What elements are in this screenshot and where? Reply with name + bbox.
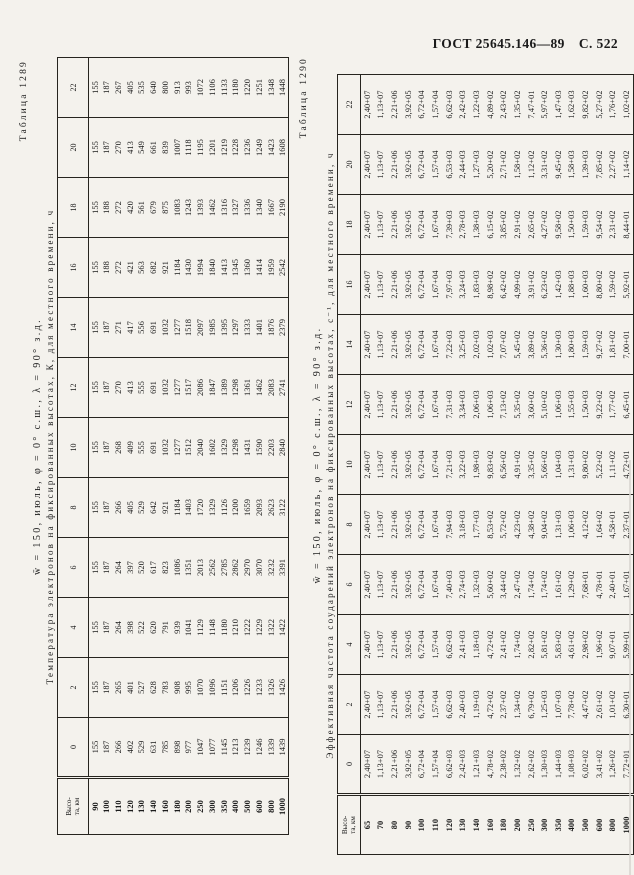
value-cell: 6,62+03 xyxy=(442,615,456,675)
value-cell: 2623 xyxy=(265,478,277,538)
altitude-cell: 400 xyxy=(230,778,242,835)
value-cell: 1,34+02 xyxy=(511,675,525,735)
value-cell: 6,53+03 xyxy=(442,135,456,195)
value-cell: 1448 xyxy=(277,58,289,118)
value-cell: 1077 xyxy=(206,718,218,778)
value-cell: 8,80+02 xyxy=(592,255,606,315)
table-row: 1006,72+046,72+046,72+046,72+046,72+046,… xyxy=(415,75,429,855)
value-cell: 1462 xyxy=(206,178,218,238)
value-cell: 800 xyxy=(159,58,171,118)
value-cell: 2,82+02 xyxy=(524,615,538,675)
value-cell: 3,44+02 xyxy=(497,555,511,615)
altitude-cell: 300 xyxy=(206,778,218,835)
altitude-column-header: Высо-та, км xyxy=(58,778,89,835)
hour-header: 22 xyxy=(338,75,361,135)
value-cell: 8,44+01 xyxy=(620,195,634,255)
value-cell: 1326 xyxy=(265,658,277,718)
value-cell: 1329 xyxy=(206,478,218,538)
value-cell: 6,72+04 xyxy=(415,375,429,435)
table-head: Высо-та, км0246810121416182022 xyxy=(58,58,89,835)
value-cell: 9,07+01 xyxy=(606,615,620,675)
value-cell: 2203 xyxy=(265,418,277,478)
value-cell: 620 xyxy=(147,598,159,658)
table-row: 3001077109611482562132916021847198518401… xyxy=(206,58,218,835)
value-cell: 640 xyxy=(147,58,159,118)
value-cell: 1,39+03 xyxy=(579,135,593,195)
value-cell: 1233 xyxy=(253,658,265,718)
value-cell: 1200 xyxy=(230,478,242,538)
value-cell: 520 xyxy=(136,538,148,598)
value-cell: 2,91+02 xyxy=(511,195,525,255)
value-cell: 1,32+02 xyxy=(511,735,525,795)
value-cell: 1,30+03 xyxy=(551,315,565,375)
value-cell: 1602 xyxy=(206,418,218,478)
table-head: Высо-та, км0246810121416182022 xyxy=(338,75,361,855)
value-cell: 1590 xyxy=(253,418,265,478)
value-cell: 691 xyxy=(147,298,159,358)
value-cell: 2840 xyxy=(277,418,289,478)
value-cell: 556 xyxy=(136,298,148,358)
value-cell: 823 xyxy=(159,538,171,598)
hour-header: 4 xyxy=(338,615,361,675)
value-cell: 1,77+03 xyxy=(470,495,484,555)
value-cell: 1,77+02 xyxy=(606,375,620,435)
value-cell: 1,13+07 xyxy=(374,615,388,675)
value-cell: 631 xyxy=(147,718,159,778)
altitude-cell: 130 xyxy=(456,795,470,855)
value-cell: 2,43+02 xyxy=(497,75,511,135)
value-cell: 875 xyxy=(159,178,171,238)
value-cell: 1226 xyxy=(241,658,253,718)
value-cell: 2,40+07 xyxy=(361,495,375,555)
value-cell: 1,18+03 xyxy=(470,615,484,675)
value-cell: 2562 xyxy=(206,538,218,598)
value-cell: 1277 xyxy=(171,298,183,358)
value-cell: 2,21+06 xyxy=(388,555,402,615)
value-cell: 6,72+04 xyxy=(415,495,429,555)
value-cell: 1243 xyxy=(183,178,195,238)
value-cell: 839 xyxy=(159,118,171,178)
table-row: 110266265264264266268270271272272270267 xyxy=(112,58,124,835)
value-cell: 6,02+02 xyxy=(579,735,593,795)
value-cell: 1994 xyxy=(194,238,206,298)
value-cell: 1,13+07 xyxy=(374,555,388,615)
value-cell: 405 xyxy=(124,58,136,118)
value-cell: 1,13+07 xyxy=(374,195,388,255)
value-cell: 2,06+03 xyxy=(470,375,484,435)
value-cell: 1126 xyxy=(218,478,230,538)
value-cell: 7,72+01 xyxy=(620,735,634,795)
value-cell: 5,81+02 xyxy=(538,615,552,675)
value-cell: 1007 xyxy=(171,118,183,178)
value-cell: 1239 xyxy=(241,718,253,778)
value-cell: 8,98+02 xyxy=(483,255,497,315)
value-cell: 561 xyxy=(136,178,148,238)
value-cell: 417 xyxy=(124,298,136,358)
value-cell: 2,62+02 xyxy=(524,735,538,795)
value-cell: 188 xyxy=(100,238,112,298)
value-cell: 1,57+04 xyxy=(429,675,443,735)
value-cell: 1180 xyxy=(218,598,230,658)
table-row: 2501047107011292013172020402086209719941… xyxy=(194,58,206,835)
value-cell: 1,57+04 xyxy=(429,75,443,135)
value-cell: 1,59+03 xyxy=(579,195,593,255)
value-cell: 1210 xyxy=(230,598,242,658)
value-cell: 1,13+07 xyxy=(374,255,388,315)
value-cell: 3,22+03 xyxy=(456,435,470,495)
value-cell: 3,35+02 xyxy=(524,435,538,495)
value-cell: 1348 xyxy=(265,58,277,118)
value-cell: 4,38+02 xyxy=(524,495,538,555)
value-cell: 2,38+02 xyxy=(497,735,511,795)
value-cell: 2,40+07 xyxy=(361,255,375,315)
value-cell: 402 xyxy=(124,718,136,778)
altitude-cell: 130 xyxy=(136,778,148,835)
value-cell: 5,92+01 xyxy=(620,255,634,315)
value-cell: 1,13+07 xyxy=(374,315,388,375)
value-cell: 1195 xyxy=(194,118,206,178)
value-cell: 1,26+02 xyxy=(606,735,620,795)
altitude-cell: 160 xyxy=(159,778,171,835)
value-cell: 9,27+02 xyxy=(592,315,606,375)
value-cell: 155 xyxy=(89,598,101,658)
value-cell: 1298 xyxy=(230,418,242,478)
altitude-cell: 800 xyxy=(606,795,620,855)
value-cell: 266 xyxy=(112,478,124,538)
value-cell: 1184 xyxy=(171,478,183,538)
value-cell: 1,59+02 xyxy=(606,255,620,315)
table-row: 1808989089391086118412771277127711841083… xyxy=(171,58,183,835)
value-cell: 6,72+04 xyxy=(415,255,429,315)
value-cell: 2,40+07 xyxy=(361,555,375,615)
hour-header: 22 xyxy=(58,58,89,118)
value-cell: 1,44+03 xyxy=(551,735,565,795)
value-cell: 4,23+02 xyxy=(511,495,525,555)
value-cell: 3,92+05 xyxy=(401,735,415,795)
value-cell: 1439 xyxy=(277,718,289,778)
hour-header: 10 xyxy=(338,435,361,495)
altitude-cell: 110 xyxy=(112,778,124,835)
value-cell: 3122 xyxy=(277,478,289,538)
value-cell: 7,85+02 xyxy=(592,135,606,195)
value-cell: 272 xyxy=(112,178,124,238)
value-cell: 1032 xyxy=(159,418,171,478)
value-cell: 2,40+07 xyxy=(361,435,375,495)
value-cell: 1,96+02 xyxy=(592,615,606,675)
value-cell: 6,72+04 xyxy=(415,675,429,735)
value-cell: 1,67+04 xyxy=(429,315,443,375)
value-cell: 2,31+02 xyxy=(606,195,620,255)
value-cell: 2,61+02 xyxy=(592,675,606,735)
value-cell: 522 xyxy=(136,598,148,658)
value-cell: 1,25+03 xyxy=(538,675,552,735)
value-cell: 5,35+02 xyxy=(511,375,525,435)
value-cell: 7,22+03 xyxy=(442,315,456,375)
value-cell: 1,02+03 xyxy=(483,315,497,375)
value-cell: 2040 xyxy=(194,418,206,478)
value-cell: 1,76+02 xyxy=(606,75,620,135)
value-cell: 5,60+02 xyxy=(483,555,497,615)
value-cell: 3,92+05 xyxy=(401,675,415,735)
value-cell: 1,13+07 xyxy=(374,75,388,135)
value-cell: 7,97+03 xyxy=(442,255,456,315)
value-cell: 1219 xyxy=(218,118,230,178)
value-cell: 3,92+05 xyxy=(401,75,415,135)
value-cell: 2,21+06 xyxy=(388,375,402,435)
altitude-cell: 100 xyxy=(100,778,112,835)
value-cell: 5,36+02 xyxy=(538,315,552,375)
value-cell: 265 xyxy=(112,658,124,718)
value-cell: 4,99+02 xyxy=(511,255,525,315)
value-cell: 1277 xyxy=(171,358,183,418)
electron-temperature-table: Высо-та, км02468101214161820229015515515… xyxy=(57,57,289,835)
value-cell: 1413 xyxy=(218,238,230,298)
value-cell: 1518 xyxy=(183,298,195,358)
value-cell: 1,57+04 xyxy=(429,135,443,195)
value-cell: 921 xyxy=(159,478,171,538)
value-cell: 187 xyxy=(100,58,112,118)
value-cell: 1401 xyxy=(253,298,265,358)
altitude-cell: 350 xyxy=(551,795,565,855)
value-cell: 913 xyxy=(171,58,183,118)
table-row: 4001,08+037,78+024,61+021,29+021,06+031,… xyxy=(565,75,579,855)
corner-header-line: та, км xyxy=(349,796,357,854)
value-cell: 1,22+03 xyxy=(470,75,484,135)
altitude-cell: 200 xyxy=(511,795,525,855)
header-row: Высо-та, км0246810121416182022 xyxy=(58,58,89,835)
table-row: 701,13+071,13+071,13+071,13+071,13+071,1… xyxy=(374,75,388,855)
value-cell: 1206 xyxy=(230,658,242,718)
value-cell: 1298 xyxy=(230,358,242,418)
altitude-cell: 350 xyxy=(218,778,230,835)
value-cell: 1,58+02 xyxy=(511,135,525,195)
value-cell: 3,92+05 xyxy=(401,555,415,615)
value-cell: 1246 xyxy=(253,718,265,778)
page-header: ГОСТ 25645.146—89С. 522 xyxy=(433,36,618,52)
value-cell: 6,56+02 xyxy=(497,435,511,495)
value-cell: 1,59+03 xyxy=(579,315,593,375)
value-cell: 3,85+02 xyxy=(497,195,511,255)
value-cell: 1985 xyxy=(206,298,218,358)
table-row: 4001213120612102862120012981298129713451… xyxy=(230,58,242,835)
value-cell: 977 xyxy=(183,718,195,778)
altitude-cell: 90 xyxy=(401,795,415,855)
value-cell: 7,07+02 xyxy=(497,315,511,375)
value-cell: 155 xyxy=(89,538,101,598)
value-cell: 3,91+02 xyxy=(524,255,538,315)
altitude-cell: 70 xyxy=(374,795,388,855)
altitude-cell: 140 xyxy=(470,795,484,855)
value-cell: 1,58+03 xyxy=(565,135,579,195)
value-cell: 791 xyxy=(159,598,171,658)
value-cell: 1,62+03 xyxy=(565,75,579,135)
altitude-cell: 600 xyxy=(592,795,606,855)
page-number: С. 522 xyxy=(579,36,618,51)
value-cell: 3,25+03 xyxy=(456,315,470,375)
table-label: Таблица 1289 xyxy=(18,58,31,835)
value-cell: 1608 xyxy=(277,118,289,178)
value-cell: 264 xyxy=(112,538,124,598)
scan-edge-artifact xyxy=(629,460,631,875)
value-cell: 1,13+07 xyxy=(374,435,388,495)
value-cell: 413 xyxy=(124,118,136,178)
hour-header: 16 xyxy=(58,238,89,298)
altitude-cell: 160 xyxy=(483,795,497,855)
value-cell: 155 xyxy=(89,478,101,538)
value-cell: 2,41+03 xyxy=(456,615,470,675)
value-cell: 4,72+01 xyxy=(620,435,634,495)
value-cell: 1,81+02 xyxy=(606,315,620,375)
value-cell: 1047 xyxy=(194,718,206,778)
table-row: 1604,78+024,72+024,72+025,60+028,53+029,… xyxy=(483,75,497,855)
value-cell: 6,72+04 xyxy=(415,75,429,135)
value-cell: 1,67+04 xyxy=(429,375,443,435)
value-cell: 563 xyxy=(136,238,148,298)
table-subtitle: Температура электронов на фиксированных … xyxy=(45,58,57,835)
value-cell: 785 xyxy=(159,718,171,778)
table-row: 130529527522520529555555556563561549535 xyxy=(136,58,148,835)
altitude-cell: 65 xyxy=(361,795,375,855)
value-cell: 9,45+02 xyxy=(551,135,565,195)
rotated-table-block-1290: Таблица 1290 w̄ = 150, июль, φ = 0° с.ш.… xyxy=(298,55,634,855)
value-cell: 5,22+02 xyxy=(592,435,606,495)
value-cell: 7,31+03 xyxy=(442,375,456,435)
value-cell: 2,65+02 xyxy=(524,195,538,255)
value-cell: 7,00+01 xyxy=(620,315,634,375)
value-cell: 679 xyxy=(147,178,159,238)
value-cell: 421 xyxy=(124,238,136,298)
value-cell: 4,12+02 xyxy=(579,495,593,555)
value-cell: 420 xyxy=(124,178,136,238)
table-row: 140631628620617642691691691682679661640 xyxy=(147,58,159,835)
hour-header: 0 xyxy=(338,735,361,795)
value-cell: 4,27+02 xyxy=(538,195,552,255)
value-cell: 271 xyxy=(112,298,124,358)
value-cell: 1517 xyxy=(183,358,195,418)
altitude-cell: 1000 xyxy=(277,778,289,835)
hour-header: 16 xyxy=(338,255,361,315)
altitude-cell: 250 xyxy=(194,778,206,835)
value-cell: 1322 xyxy=(265,598,277,658)
value-cell: 1070 xyxy=(194,658,206,718)
value-cell: 9,04+02 xyxy=(538,495,552,555)
value-cell: 2741 xyxy=(277,358,289,418)
value-cell: 6,72+04 xyxy=(415,735,429,795)
value-cell: 187 xyxy=(100,478,112,538)
value-cell: 1667 xyxy=(265,178,277,238)
value-cell: 2083 xyxy=(265,358,277,418)
altitude-cell: 110 xyxy=(429,795,443,855)
value-cell: 1148 xyxy=(206,598,218,658)
value-cell: 3,31+02 xyxy=(538,135,552,195)
table-row: 1302,42+032,40+032,41+032,74+033,18+033,… xyxy=(456,75,470,855)
corner-header-line: Высо- xyxy=(65,779,73,834)
value-cell: 2,37+01 xyxy=(620,495,634,555)
value-cell: 3,92+05 xyxy=(401,255,415,315)
value-cell: 405 xyxy=(124,478,136,538)
value-cell: 6,62+03 xyxy=(442,75,456,135)
value-cell: 409 xyxy=(124,418,136,478)
value-cell: 2,21+06 xyxy=(388,735,402,795)
value-cell: 1220 xyxy=(241,58,253,118)
value-cell: 2,42+03 xyxy=(456,75,470,135)
hour-header: 2 xyxy=(58,658,89,718)
value-cell: 1106 xyxy=(206,58,218,118)
value-cell: 6,15+02 xyxy=(483,195,497,255)
value-cell: 5,97+02 xyxy=(538,75,552,135)
table-row: 100187187187187187187187187188188187187 xyxy=(100,58,112,835)
value-cell: 272 xyxy=(112,238,124,298)
value-cell: 1351 xyxy=(183,538,195,598)
value-cell: 3,92+05 xyxy=(401,135,415,195)
value-cell: 1426 xyxy=(277,658,289,718)
value-cell: 617 xyxy=(147,538,159,598)
value-cell: 1,61+02 xyxy=(551,555,565,615)
table-title: w̄ = 150, июль, φ = 0° с.ш., λ = 90° з.д… xyxy=(311,55,325,855)
value-cell: 1,74+02 xyxy=(511,615,525,675)
altitude-cell: 90 xyxy=(89,778,101,835)
value-cell: 4,91+02 xyxy=(511,435,525,495)
value-cell: 1,67+04 xyxy=(429,555,443,615)
value-cell: 2,40+07 xyxy=(361,375,375,435)
value-cell: 266 xyxy=(112,718,124,778)
value-cell: 6,45+01 xyxy=(620,375,634,435)
value-cell: 264 xyxy=(112,598,124,658)
hour-header: 6 xyxy=(338,555,361,615)
altitude-cell: 140 xyxy=(147,778,159,835)
value-cell: 1,31+03 xyxy=(551,495,565,555)
value-cell: 2,21+06 xyxy=(388,255,402,315)
altitude-cell: 500 xyxy=(241,778,253,835)
value-cell: 1,32+03 xyxy=(470,555,484,615)
value-cell: 155 xyxy=(89,58,101,118)
standard-number: ГОСТ 25645.146—89 xyxy=(433,36,565,51)
value-cell: 6,72+04 xyxy=(415,555,429,615)
value-cell: 3,92+05 xyxy=(401,615,415,675)
value-cell: 2,02+03 xyxy=(470,315,484,375)
value-cell: 2,21+06 xyxy=(388,195,402,255)
table-row: 90155155155155155155155155155155155155 xyxy=(89,58,101,835)
value-cell: 527 xyxy=(136,658,148,718)
value-cell: 1,38+03 xyxy=(470,195,484,255)
value-cell: 2,40+03 xyxy=(456,675,470,735)
value-cell: 555 xyxy=(136,418,148,478)
value-cell: 3391 xyxy=(277,538,289,598)
table-label: Таблица 1290 xyxy=(298,55,311,855)
hour-header: 20 xyxy=(338,135,361,195)
value-cell: 1151 xyxy=(218,658,230,718)
value-cell: 1,27+03 xyxy=(470,135,484,195)
table-row: 10007,72+016,30+015,99+011,67+012,37+014… xyxy=(620,75,634,855)
value-cell: 529 xyxy=(136,718,148,778)
altitude-column-header: Высо-та, км xyxy=(338,795,361,855)
value-cell: 6,42+02 xyxy=(497,255,511,315)
table-row: 6003,41+022,61+021,96+024,78+011,64+025,… xyxy=(592,75,606,855)
value-cell: 2,40+07 xyxy=(361,315,375,375)
value-cell: 6,72+04 xyxy=(415,315,429,375)
value-cell: 2,47+02 xyxy=(511,555,525,615)
table-row: 652,40+072,40+072,40+072,40+072,40+072,4… xyxy=(361,75,375,855)
value-cell: 1,47+03 xyxy=(551,75,565,135)
value-cell: 155 xyxy=(89,178,101,238)
value-cell: 1,13+07 xyxy=(374,135,388,195)
table-body: 652,40+072,40+072,40+072,40+072,40+072,4… xyxy=(361,75,634,855)
value-cell: 5,66+02 xyxy=(538,435,552,495)
value-cell: 535 xyxy=(136,58,148,118)
value-cell: 1333 xyxy=(241,298,253,358)
value-cell: 1336 xyxy=(241,178,253,238)
value-cell: 3,89+02 xyxy=(524,315,538,375)
